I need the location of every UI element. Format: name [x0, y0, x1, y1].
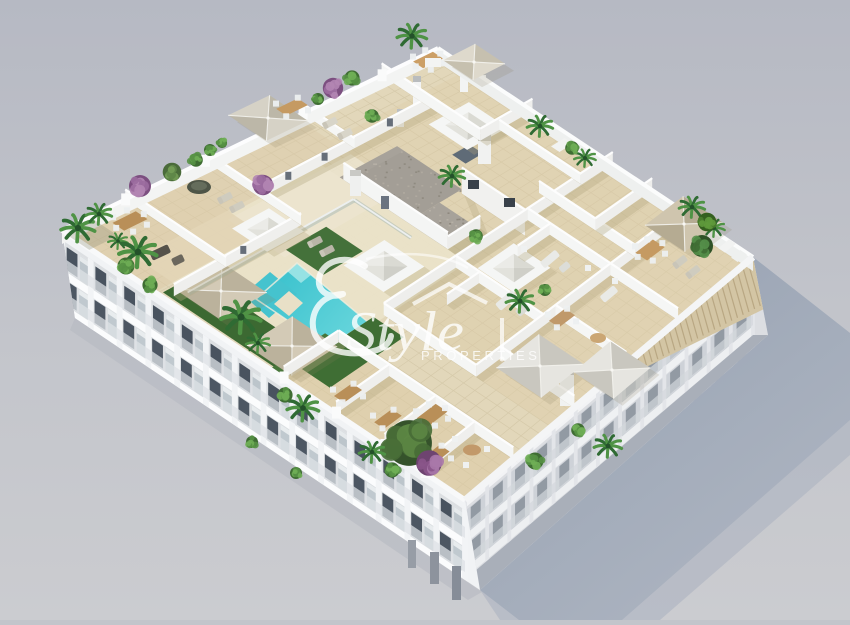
svg-text:PROPERTIES: PROPERTIES: [421, 348, 541, 363]
